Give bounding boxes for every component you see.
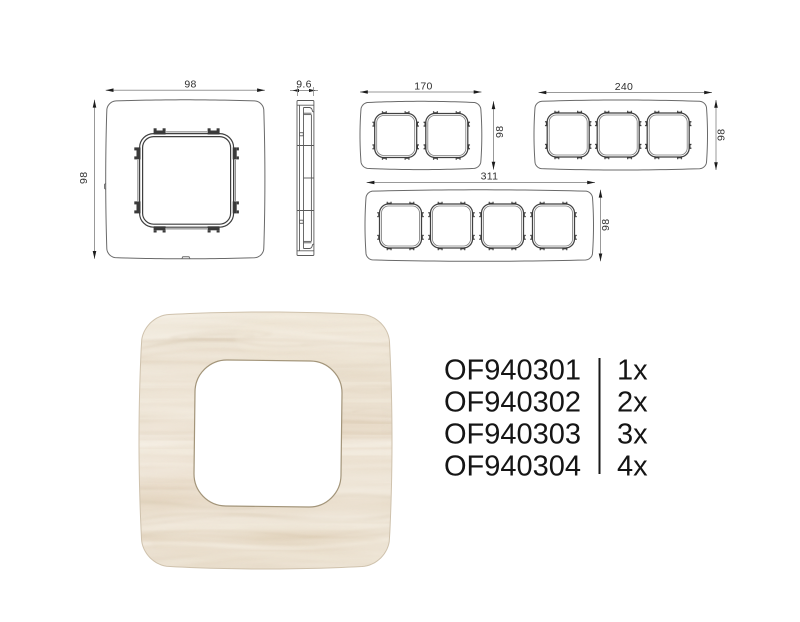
svg-text:OF940301: OF940301 [444, 355, 581, 387]
svg-text:98: 98 [184, 78, 196, 90]
svg-text:3x: 3x [617, 419, 648, 451]
svg-text:98: 98 [78, 172, 90, 184]
svg-text:OF940302: OF940302 [444, 387, 581, 419]
svg-text:OF940304: OF940304 [444, 451, 581, 483]
svg-text:4x: 4x [617, 451, 648, 483]
svg-text:170: 170 [414, 80, 432, 92]
svg-text:9.6: 9.6 [296, 78, 312, 90]
svg-text:311: 311 [481, 171, 499, 183]
svg-text:OF940303: OF940303 [444, 419, 581, 451]
svg-text:98: 98 [600, 219, 612, 231]
svg-text:240: 240 [615, 81, 633, 93]
svg-text:1x: 1x [617, 355, 648, 387]
svg-text:98: 98 [494, 126, 506, 138]
svg-text:2x: 2x [617, 387, 648, 419]
svg-text:98: 98 [715, 129, 727, 141]
